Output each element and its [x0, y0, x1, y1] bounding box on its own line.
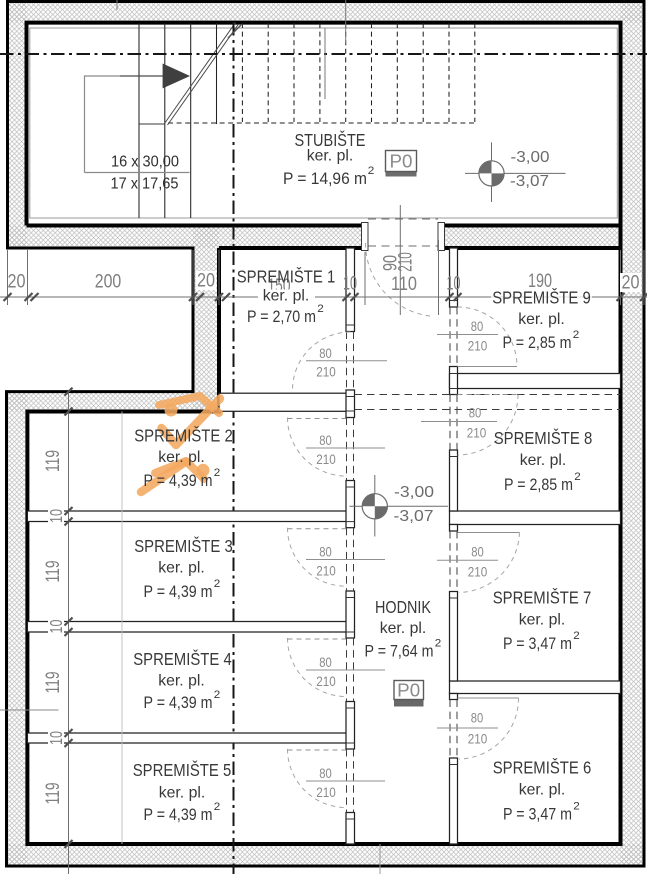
svg-text:P = 14,96 m: P = 14,96 m — [283, 169, 367, 188]
svg-text:HODNIK: HODNIK — [375, 597, 431, 617]
svg-text:SPREMIŠTE 2: SPREMIŠTE 2 — [134, 425, 233, 446]
svg-text:119: 119 — [43, 783, 64, 805]
svg-text:-3,00: -3,00 — [394, 484, 434, 501]
svg-text:P = 4,39 m: P = 4,39 m — [144, 582, 213, 601]
svg-text:SPREMIŠTE 8: SPREMIŠTE 8 — [494, 427, 593, 448]
svg-text:ker. pl.: ker. pl. — [519, 612, 566, 629]
svg-text:ker. pl.: ker. pl. — [158, 560, 205, 577]
svg-text:210: 210 — [468, 564, 488, 580]
svg-text:-3,07: -3,07 — [510, 173, 549, 190]
svg-text:210: 210 — [468, 338, 488, 354]
svg-text:2: 2 — [573, 801, 580, 813]
svg-text:2: 2 — [317, 303, 324, 315]
svg-text:80: 80 — [319, 654, 332, 670]
svg-text:2: 2 — [214, 689, 221, 701]
svg-text:200: 200 — [95, 272, 122, 293]
svg-text:ker. pl.: ker. pl. — [158, 673, 205, 690]
svg-text:P = 2,85 m: P = 2,85 m — [503, 333, 572, 352]
svg-text:P = 3,47 m: P = 3,47 m — [503, 805, 572, 824]
svg-text:10: 10 — [46, 509, 66, 523]
svg-text:80: 80 — [319, 345, 332, 361]
svg-text:ker. pl.: ker. pl. — [307, 148, 354, 165]
svg-text:2: 2 — [368, 165, 375, 177]
svg-text:210: 210 — [316, 451, 336, 467]
svg-text:P = 4,39 m: P = 4,39 m — [144, 693, 213, 712]
svg-text:ker. pl.: ker. pl. — [380, 620, 427, 637]
svg-text:16 x 30,00: 16 x 30,00 — [111, 154, 179, 171]
svg-text:80: 80 — [471, 544, 484, 560]
svg-text:20: 20 — [8, 272, 26, 293]
svg-text:20: 20 — [622, 273, 640, 294]
svg-text:10: 10 — [46, 619, 66, 633]
svg-text:210: 210 — [316, 563, 336, 579]
svg-text:P0: P0 — [397, 681, 420, 701]
svg-text:2: 2 — [574, 471, 581, 483]
svg-text:P0: P0 — [390, 152, 413, 172]
svg-text:119: 119 — [43, 450, 64, 472]
svg-text:2: 2 — [214, 801, 221, 813]
svg-text:10: 10 — [447, 274, 461, 295]
svg-text:ker. pl.: ker. pl. — [263, 288, 310, 305]
svg-text:SPREMIŠTE 1: SPREMIŠTE 1 — [237, 266, 336, 287]
svg-text:ker. pl.: ker. pl. — [518, 311, 565, 328]
svg-text:17 x 17,65: 17 x 17,65 — [111, 176, 179, 193]
svg-text:210: 210 — [468, 731, 488, 747]
svg-text:SPREMIŠTE 7: SPREMIŠTE 7 — [493, 587, 592, 608]
svg-text:20: 20 — [197, 271, 215, 292]
svg-text:80: 80 — [471, 710, 484, 726]
svg-text:P = 4,39 m: P = 4,39 m — [144, 805, 213, 824]
svg-text:80: 80 — [469, 405, 482, 421]
svg-text:2: 2 — [435, 638, 442, 650]
svg-text:80: 80 — [471, 318, 484, 334]
svg-text:2: 2 — [214, 578, 221, 590]
svg-text:P = 2,70 m: P = 2,70 m — [247, 307, 316, 326]
svg-text:ker. pl.: ker. pl. — [520, 452, 567, 469]
svg-text:119: 119 — [43, 672, 64, 694]
svg-text:ker. pl.: ker. pl. — [519, 782, 566, 799]
svg-text:SPREMIŠTE 4: SPREMIŠTE 4 — [133, 648, 232, 669]
svg-text:210: 210 — [396, 252, 417, 272]
svg-text:SPREMIŠTE 6: SPREMIŠTE 6 — [493, 757, 592, 778]
svg-text:80: 80 — [319, 544, 332, 560]
svg-text:2: 2 — [573, 329, 580, 341]
svg-text:210: 210 — [316, 673, 336, 689]
svg-text:-3,07: -3,07 — [394, 508, 434, 525]
svg-text:10: 10 — [46, 731, 66, 745]
svg-text:2: 2 — [214, 467, 221, 479]
svg-text:210: 210 — [316, 364, 336, 380]
svg-text:110: 110 — [391, 274, 417, 295]
svg-text:80: 80 — [319, 432, 332, 448]
svg-text:P = 7,64 m: P = 7,64 m — [365, 642, 434, 661]
svg-text:80: 80 — [319, 765, 332, 781]
svg-text:119: 119 — [43, 561, 64, 583]
svg-text:SPREMIŠTE 5: SPREMIŠTE 5 — [133, 759, 232, 780]
svg-text:SPREMIŠTE 9: SPREMIŠTE 9 — [492, 287, 591, 308]
svg-text:P = 3,47 m: P = 3,47 m — [503, 634, 572, 653]
svg-text:P = 2,85 m: P = 2,85 m — [504, 475, 573, 494]
svg-text:10: 10 — [343, 274, 357, 295]
svg-text:SPREMIŠTE 3: SPREMIŠTE 3 — [134, 535, 233, 556]
svg-text:210: 210 — [467, 425, 487, 441]
svg-text:-3,00: -3,00 — [511, 149, 550, 166]
svg-text:ker. pl.: ker. pl. — [159, 785, 206, 802]
svg-text:2: 2 — [573, 630, 580, 642]
svg-text:210: 210 — [316, 784, 336, 800]
svg-text:ker. pl.: ker. pl. — [158, 449, 205, 466]
svg-text:P = 4,39 m: P = 4,39 m — [144, 471, 213, 490]
